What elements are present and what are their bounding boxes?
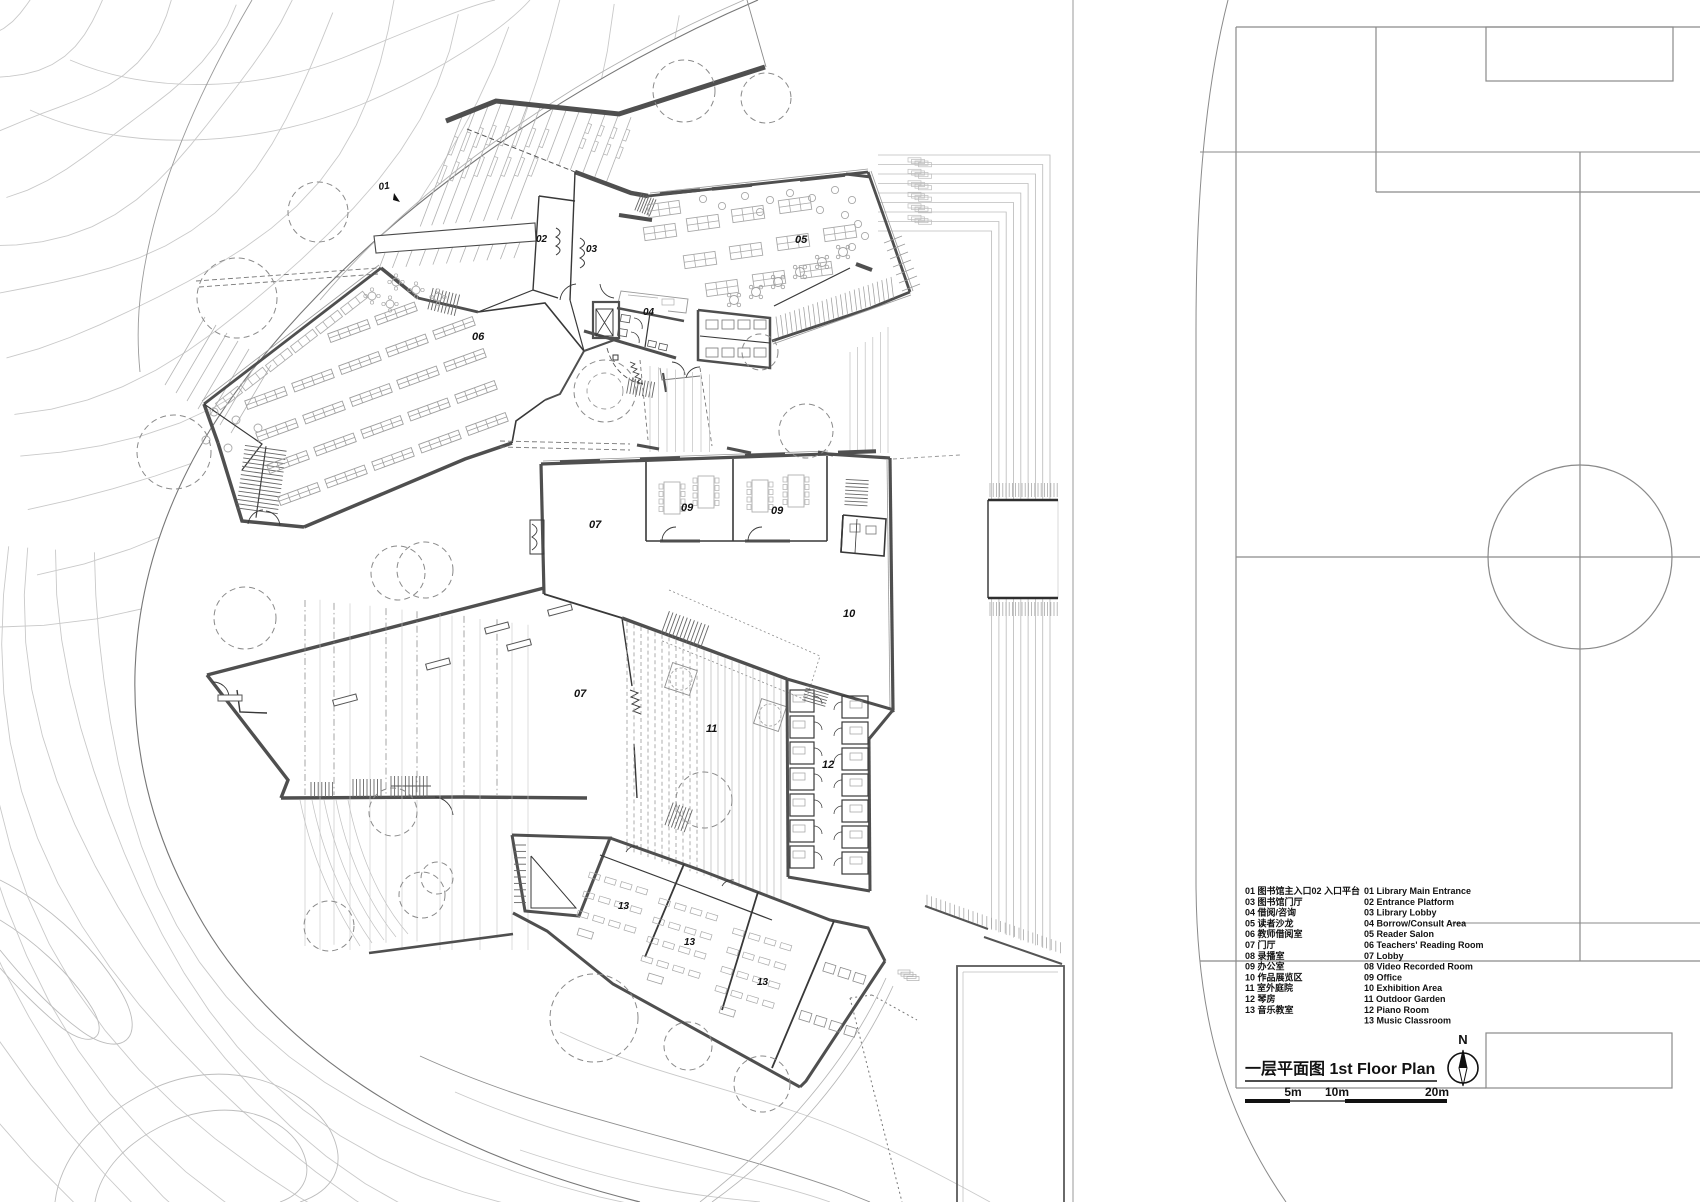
svg-text:09: 09 [771,505,784,517]
svg-text:06 Teachers' Reading Room: 06 Teachers' Reading Room [1364,940,1484,950]
svg-text:11 室外庭院: 11 室外庭院 [1245,982,1293,993]
svg-text:12 琴房: 12 琴房 [1245,993,1276,1004]
svg-text:03 图书馆门厅: 03 图书馆门厅 [1245,896,1303,907]
svg-text:07: 07 [574,688,587,700]
svg-text:09 办公室: 09 办公室 [1245,961,1285,972]
svg-text:08 Video Recorded Room: 08 Video Recorded Room [1364,962,1473,972]
svg-text:11 Outdoor Garden: 11 Outdoor Garden [1364,994,1446,1004]
svg-text:N: N [1458,1032,1467,1047]
svg-text:10: 10 [843,608,856,620]
svg-text:04: 04 [643,307,655,318]
svg-text:07: 07 [589,519,602,531]
svg-text:13 Music Classroom: 13 Music Classroom [1364,1016,1451,1026]
svg-text:09: 09 [681,502,694,514]
svg-text:08 录播室: 08 录播室 [1245,950,1285,961]
svg-text:13: 13 [684,937,696,948]
svg-text:11: 11 [706,723,717,735]
svg-text:01: 01 [378,180,391,193]
svg-text:04 Borrow/Consult Area: 04 Borrow/Consult Area [1364,918,1467,928]
svg-text:13: 13 [757,977,769,988]
svg-text:01 图书馆主入口02 入口平台: 01 图书馆主入口02 入口平台 [1245,885,1360,896]
svg-text:06 教师借阅室: 06 教师借阅室 [1245,928,1303,939]
svg-text:04 借阅/咨询: 04 借阅/咨询 [1245,907,1296,918]
svg-text:03 Library Lobby: 03 Library Lobby [1364,908,1437,918]
svg-text:09 Office: 09 Office [1364,972,1402,982]
svg-text:05: 05 [795,234,808,246]
svg-text:12: 12 [822,759,834,771]
svg-text:05 读者沙龙: 05 读者沙龙 [1245,917,1294,928]
svg-text:10 作品展览区: 10 作品展览区 [1245,971,1303,982]
svg-text:06: 06 [472,331,485,343]
svg-text:13 音乐教室: 13 音乐教室 [1245,1004,1294,1015]
svg-text:20m: 20m [1425,1085,1449,1099]
svg-text:10m: 10m [1325,1085,1349,1099]
svg-text:07 Lobby: 07 Lobby [1364,951,1404,961]
svg-text:02: 02 [536,234,548,245]
svg-text:13: 13 [618,901,630,912]
svg-text:07 门厅: 07 门厅 [1245,939,1276,950]
svg-text:一层平面图 1st Floor Plan: 一层平面图 1st Floor Plan [1245,1060,1435,1078]
svg-text:05 Reader Salon: 05 Reader Salon [1364,929,1434,939]
svg-text:03: 03 [586,244,598,255]
svg-text:12 Piano Room: 12 Piano Room [1364,1005,1429,1015]
svg-text:01 Library Main Entrance: 01 Library Main Entrance [1364,886,1471,896]
svg-text:02 Entrance Platform: 02 Entrance Platform [1364,897,1454,907]
svg-text:10 Exhibition Area: 10 Exhibition Area [1364,983,1443,993]
svg-text:5m: 5m [1284,1085,1301,1099]
